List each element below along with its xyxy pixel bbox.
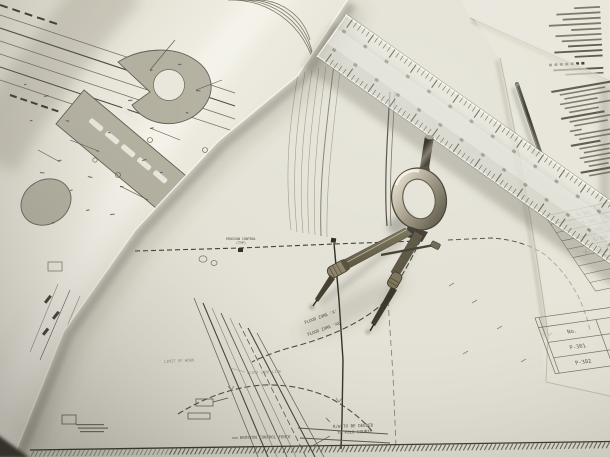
erosion-symbol [238,248,243,252]
erosion-control-label2: (TYP) [236,241,246,245]
pencil-end [516,83,519,86]
erosion-fence-label: EROSION CONTROL FENCE [240,434,291,440]
corner-monument [331,238,337,243]
roll-road-island [154,70,185,101]
photo-scene: EROSION CONTROL (TYP) FLOOD ZONE 'X' FLO… [0,0,610,457]
blueprint-photo: EROSION CONTROL (TYP) FLOOD ZONE 'X' FLO… [0,0,610,457]
